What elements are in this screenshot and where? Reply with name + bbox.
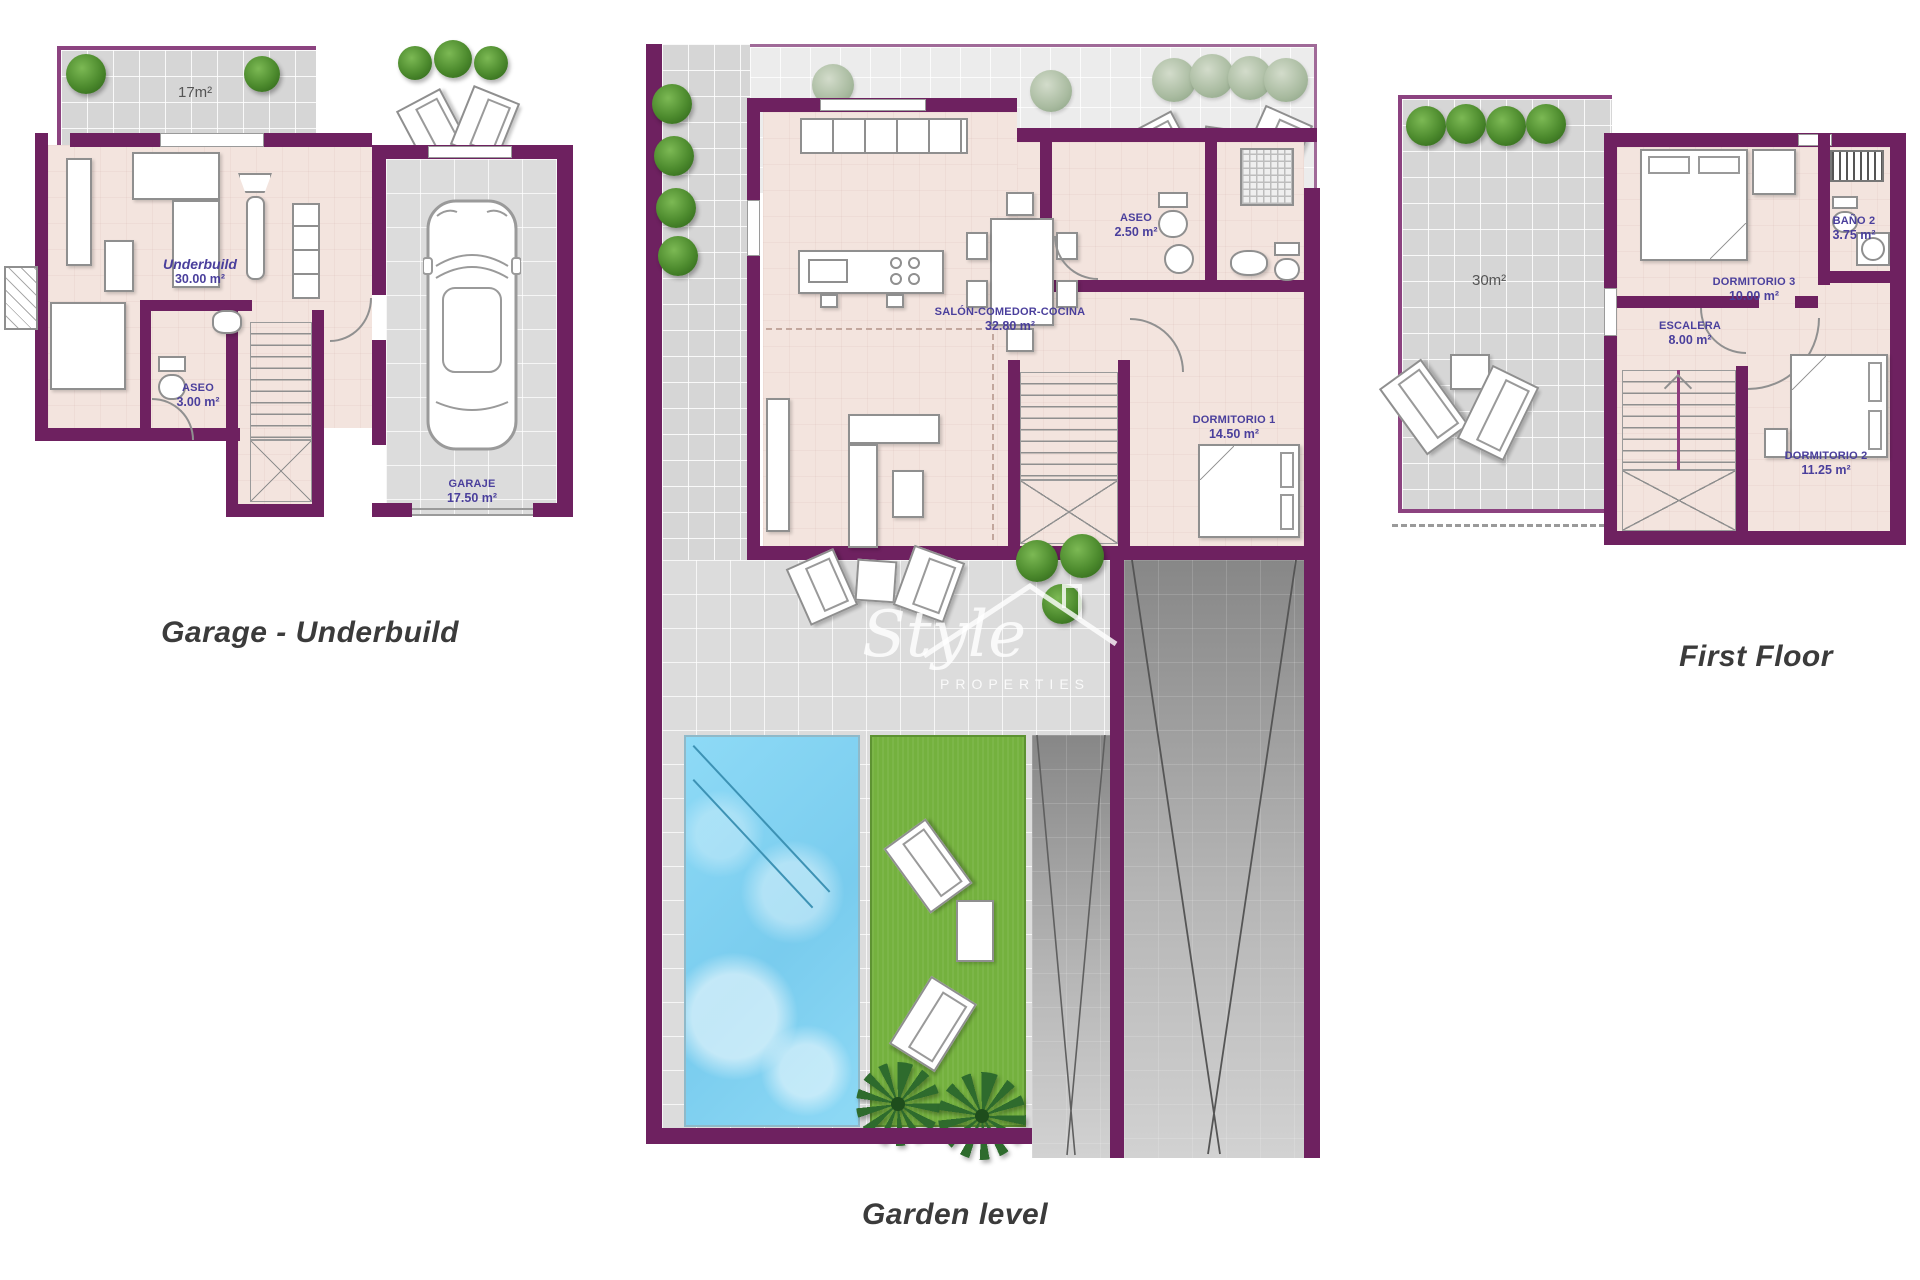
stairs-landing [1622, 470, 1736, 531]
sink [1164, 244, 1194, 274]
kitchen-cabinets [800, 118, 968, 154]
bush-icon [1446, 104, 1486, 144]
wall [1818, 133, 1830, 285]
bush-icon [474, 46, 508, 80]
room-label-aseo2: ASEO 2.50 m² [1096, 212, 1176, 239]
bush-icon [398, 46, 432, 80]
room-label-salon: SALÓN-COMEDOR-COCINA 32.80 m² [930, 306, 1090, 333]
room-label-bano2: BAÑO 2 3.75 m² [1820, 215, 1888, 242]
bush-icon [1264, 58, 1308, 102]
wall [226, 310, 238, 517]
wall [1304, 188, 1320, 1158]
bush-icon [1406, 106, 1446, 146]
ramp-lines [1032, 735, 1110, 1158]
bush-icon [656, 188, 696, 228]
sink [1230, 250, 1268, 276]
bush-icon [652, 84, 692, 124]
stairs-landing [1020, 480, 1118, 544]
radiator [1830, 150, 1884, 182]
wall [372, 145, 386, 295]
bush-icon [654, 136, 694, 176]
room-label-escalera: ESCALERA 8.00 m² [1648, 320, 1732, 347]
terrace-area-label: 17m² [178, 84, 212, 101]
driveway-ramp [1124, 560, 1304, 1158]
sofa [848, 414, 940, 444]
wall [1604, 133, 1890, 147]
wall [1205, 128, 1217, 292]
wall [372, 503, 412, 517]
palm-plant-icon [938, 1072, 1026, 1160]
wall [372, 340, 386, 445]
wall [1736, 366, 1748, 531]
toilet [1274, 242, 1300, 282]
bush-icon [1042, 584, 1082, 624]
caption-first-floor: First Floor [1556, 640, 1920, 674]
bed [1198, 444, 1300, 538]
wall [1890, 133, 1906, 545]
plot-boundary-dashed [1392, 524, 1614, 527]
garage-door-line [412, 508, 533, 510]
bush-icon [66, 54, 106, 94]
room-label-aseo: ASEO 3.00 m² [158, 382, 238, 409]
coffee-table [892, 470, 924, 518]
wall [1110, 560, 1124, 1158]
tv-unit [766, 398, 790, 532]
bush-icon [434, 40, 472, 78]
shelving [292, 203, 320, 299]
bush-icon [1526, 104, 1566, 144]
dining-chair [966, 232, 988, 260]
tv-unit [66, 158, 92, 266]
window [428, 146, 512, 158]
caption-garage-underbuild: Garage - Underbuild [110, 616, 510, 650]
bed [1790, 354, 1888, 458]
kitchen-sink [808, 259, 848, 283]
bush-icon [1060, 534, 1104, 578]
wall [646, 1128, 1032, 1144]
wall [1118, 360, 1130, 546]
room-label-dormitorio3: DORMITORIO 3 10.00 m² [1700, 276, 1808, 303]
window [160, 133, 264, 147]
floorplan-sheet: 17m² [0, 0, 1920, 1280]
dining-chair [1006, 192, 1034, 216]
bed [1640, 149, 1748, 261]
pool-steps [693, 745, 831, 893]
wall [1604, 133, 1617, 545]
driveway-ramp [1032, 735, 1110, 1158]
island-leg [820, 294, 838, 308]
kitchen-island [798, 250, 944, 294]
stairs [250, 322, 312, 440]
wall [1017, 128, 1317, 142]
wall [747, 98, 760, 560]
side-table [104, 240, 134, 292]
garage-door-line [412, 514, 533, 516]
room-label-garaje: GARAJE 17.50 m² [422, 478, 522, 505]
wall [557, 145, 573, 517]
wall [312, 310, 324, 517]
pool-steps [693, 779, 814, 908]
bush-icon [1486, 106, 1526, 146]
wall [35, 428, 240, 441]
wall [1604, 531, 1906, 545]
hob [890, 257, 932, 287]
bush-icon [1016, 540, 1058, 582]
window [747, 200, 760, 256]
closet [4, 266, 38, 330]
dresser [1752, 149, 1796, 195]
island-leg [886, 294, 904, 308]
ramp-lines [1124, 560, 1304, 1158]
bush-icon [658, 236, 698, 276]
car-icon [423, 196, 521, 454]
terrace-area-label: 30m² [1472, 272, 1506, 289]
stairs-landing [250, 440, 312, 502]
dining-chair [1056, 280, 1078, 308]
wall [140, 300, 252, 311]
wall [1818, 271, 1890, 283]
room-label-underbuild: Underbuild 30.00 m² [140, 256, 260, 286]
window [820, 99, 926, 111]
zone-divider [992, 334, 994, 540]
storage-box [50, 302, 126, 390]
lawn-table [956, 900, 994, 962]
window [1604, 288, 1617, 336]
shower [1240, 148, 1294, 206]
stairs [1020, 372, 1118, 480]
bush-icon [244, 56, 280, 92]
wall [533, 503, 573, 517]
sofa [848, 444, 878, 548]
patio-table [855, 559, 898, 604]
sofa [132, 152, 220, 200]
wall [140, 300, 151, 428]
caption-garden-level: Garden level [755, 1198, 1155, 1232]
sink [212, 310, 242, 334]
dining-chair [966, 280, 988, 308]
pool [684, 735, 860, 1127]
wall [226, 504, 324, 517]
room-label-dormitorio2: DORMITORIO 2 11.25 m² [1776, 450, 1876, 477]
room-label-dormitorio1: DORMITORIO 1 14.50 m² [1178, 414, 1290, 441]
wall [1008, 360, 1020, 546]
bush-icon [1030, 70, 1072, 112]
